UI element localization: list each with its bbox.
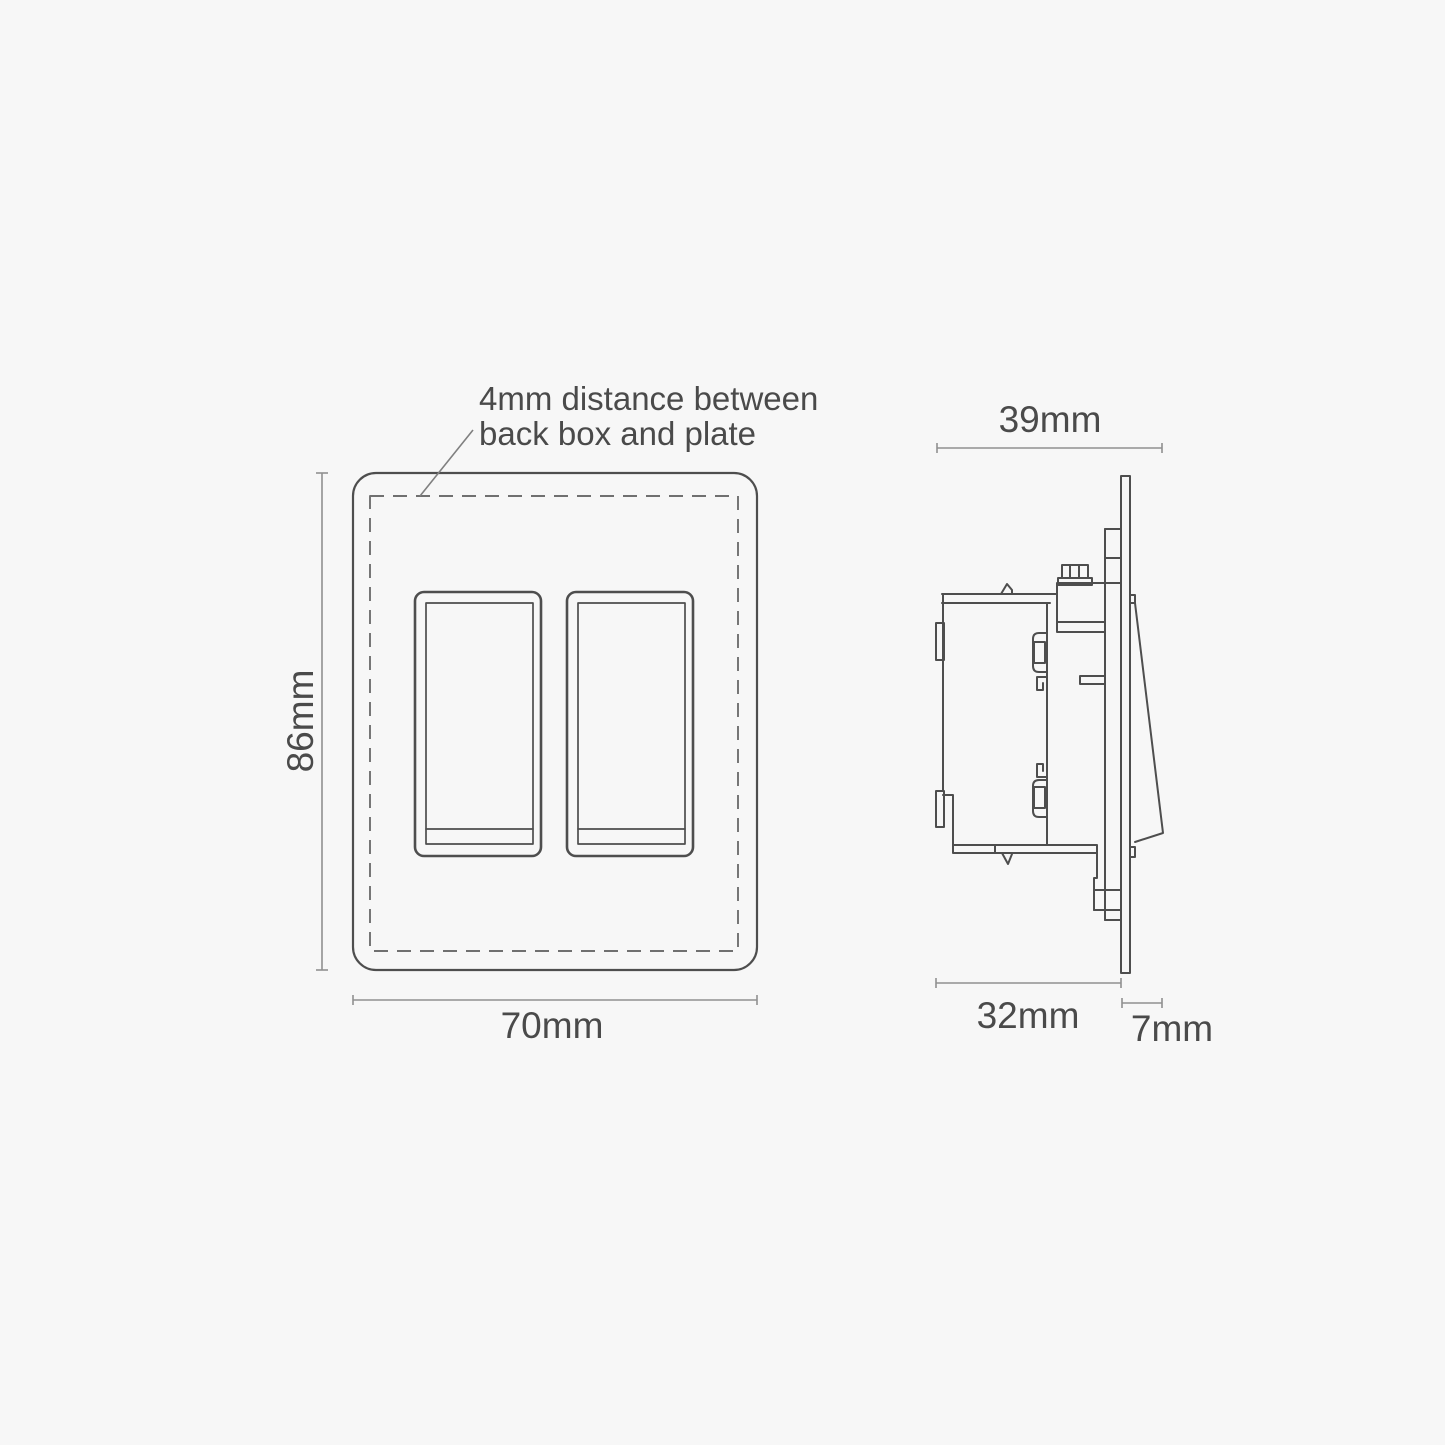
dim-7mm bbox=[1122, 998, 1162, 1008]
dim-39mm bbox=[937, 443, 1162, 453]
plate-depth-dimension-label: 7mm bbox=[1131, 1008, 1213, 1050]
side-rocker-wedge bbox=[1130, 595, 1163, 857]
backbox-depth-dimension-label: 32mm bbox=[977, 995, 1080, 1037]
bottom-right-steps bbox=[1094, 853, 1097, 910]
side-yoke bbox=[1105, 529, 1121, 920]
dim-32mm bbox=[936, 978, 1121, 988]
dimension-lines bbox=[316, 430, 1162, 1008]
base-strip bbox=[953, 845, 1097, 853]
front-view-drawing bbox=[353, 473, 757, 970]
annotation-line-1: 4mm distance between bbox=[479, 381, 818, 416]
side-plate bbox=[1121, 476, 1130, 973]
upper-hook bbox=[1037, 677, 1047, 690]
width-dimension-label: 70mm bbox=[501, 1005, 604, 1047]
backbox-plate-annotation: 4mm distance between back box and plate bbox=[479, 381, 818, 451]
top-clip bbox=[1001, 584, 1012, 594]
diagram-canvas: 4mm distance between back box and plate … bbox=[0, 0, 1445, 1445]
rocker-switch-right bbox=[567, 592, 693, 856]
side-mounting-lug bbox=[1057, 583, 1121, 632]
annotation-line-2: back box and plate bbox=[479, 416, 818, 451]
plate-outline bbox=[353, 473, 757, 970]
lower-hook bbox=[1037, 764, 1047, 777]
side-terminal bbox=[1080, 676, 1105, 684]
bottom-notch bbox=[1002, 853, 1012, 864]
technical-drawing bbox=[0, 0, 1445, 1445]
total-depth-dimension-label: 39mm bbox=[999, 399, 1102, 441]
rocker-switch-left bbox=[415, 592, 541, 856]
dim-70mm bbox=[353, 995, 757, 1005]
annotation-leader-line bbox=[420, 430, 473, 496]
height-dimension-label: 86mm bbox=[280, 670, 322, 773]
side-view-drawing bbox=[936, 476, 1163, 973]
left-tab-lower bbox=[936, 791, 944, 827]
